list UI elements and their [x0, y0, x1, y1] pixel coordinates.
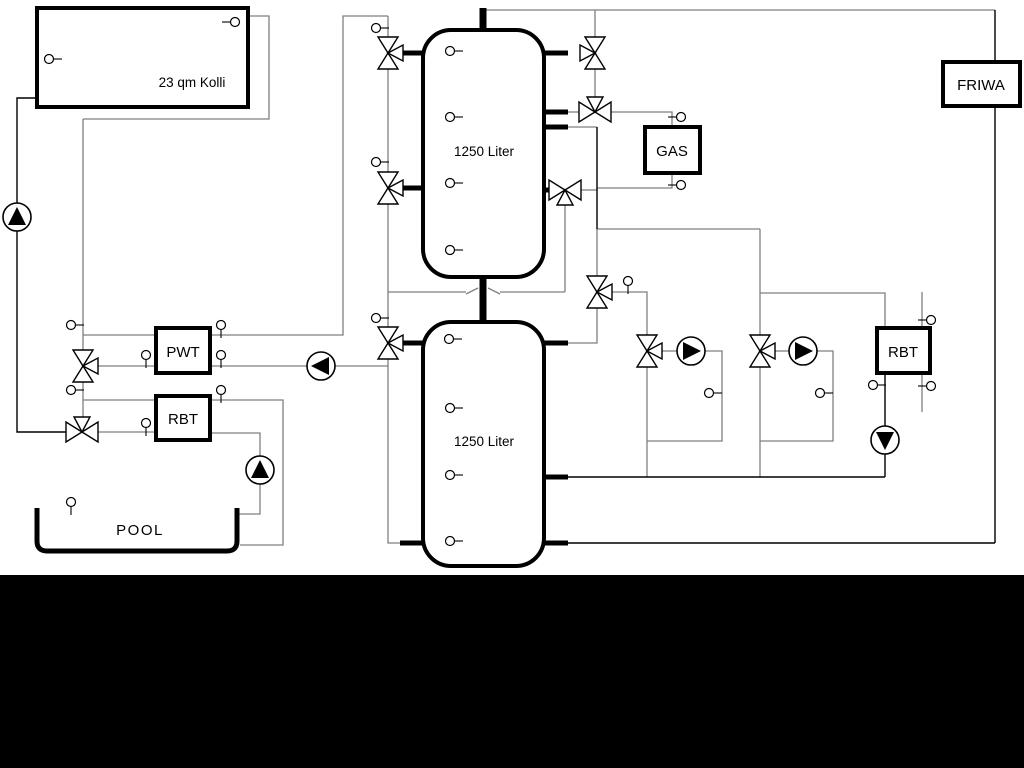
- solar-collector-box: [37, 8, 248, 107]
- friwa-label: FRIWA: [957, 77, 1005, 94]
- tank-top-label: 1250 Liter: [454, 144, 515, 159]
- pump-solar-icon: [3, 203, 31, 231]
- bottom-black-bar: [0, 575, 1024, 768]
- hydraulic-schematic: 23 qm Kolli 1250 Liter 1250 Liter PWT RB…: [0, 0, 1024, 768]
- rbt-left-label: RBT: [168, 411, 198, 428]
- tank-bottom-label: 1250 Liter: [454, 434, 515, 449]
- collector-label: 23 qm Kolli: [159, 75, 226, 90]
- pump-circuit1-icon: [677, 337, 705, 365]
- pwt-label: PWT: [166, 344, 199, 361]
- pump-pool-icon: [246, 456, 274, 484]
- schematic-page: 23 qm Kolli 1250 Liter 1250 Liter PWT RB…: [0, 0, 1024, 768]
- pump-pwt-icon: [307, 352, 335, 380]
- pump-rbt-right-icon: [871, 426, 899, 454]
- rbt-right-label: RBT: [888, 344, 918, 361]
- pool-label: POOL: [116, 522, 164, 539]
- gas-label: GAS: [656, 143, 688, 160]
- pump-circuit2-icon: [789, 337, 817, 365]
